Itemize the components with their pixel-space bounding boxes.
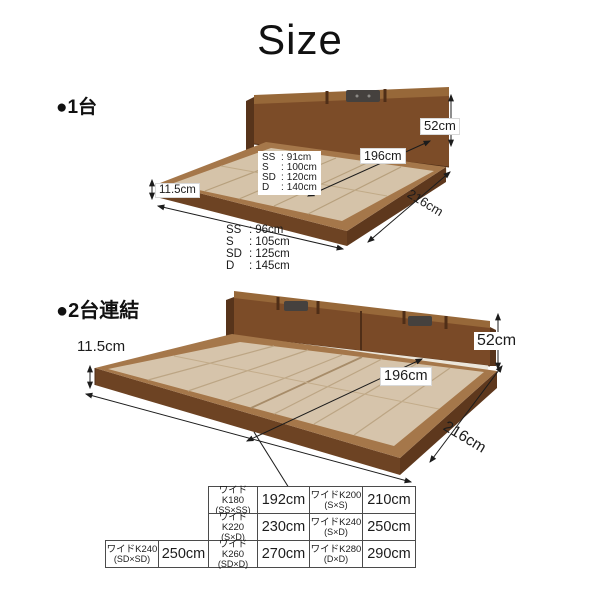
section1-heading: ●1台 bbox=[56, 92, 97, 119]
outlet-tray-icon bbox=[284, 301, 308, 311]
bed2-inner-length-label: 196cm bbox=[380, 367, 432, 386]
bed1-outer-width-table: SS:96cmS:105cmSD:125cmD:145cm bbox=[226, 224, 290, 272]
size-row: SD:125cm bbox=[226, 248, 290, 260]
size-spec-page: Size ●1台 ●2台連結 52cm 196cm 11.5cm 216cm S… bbox=[0, 0, 600, 600]
bed2-illustration bbox=[95, 291, 497, 475]
section2-heading: ●2台連結 bbox=[56, 294, 139, 323]
size-row: SS:96cm bbox=[226, 224, 290, 236]
bed2-frame-height-label: 11.5cm bbox=[77, 338, 125, 355]
size-row: D:140cm bbox=[262, 183, 317, 193]
page-title: Size bbox=[0, 16, 600, 64]
outlet-tray-icon bbox=[408, 316, 432, 326]
bed1-inner-width-table: SS:91cmS:100cmSD:120cmD:140cm bbox=[258, 151, 321, 195]
size-row: D:145cm bbox=[226, 260, 290, 272]
bed1-inner-length-label: 196cm bbox=[360, 148, 406, 164]
outlet-tray-icon bbox=[346, 90, 380, 102]
bed2-headboard-height-label: 52cm bbox=[474, 332, 519, 350]
bed1-frame-height-label: 11.5cm bbox=[155, 183, 200, 198]
bed1-headboard-height-label: 52cm bbox=[420, 118, 460, 135]
size-row: S:105cm bbox=[226, 236, 290, 248]
